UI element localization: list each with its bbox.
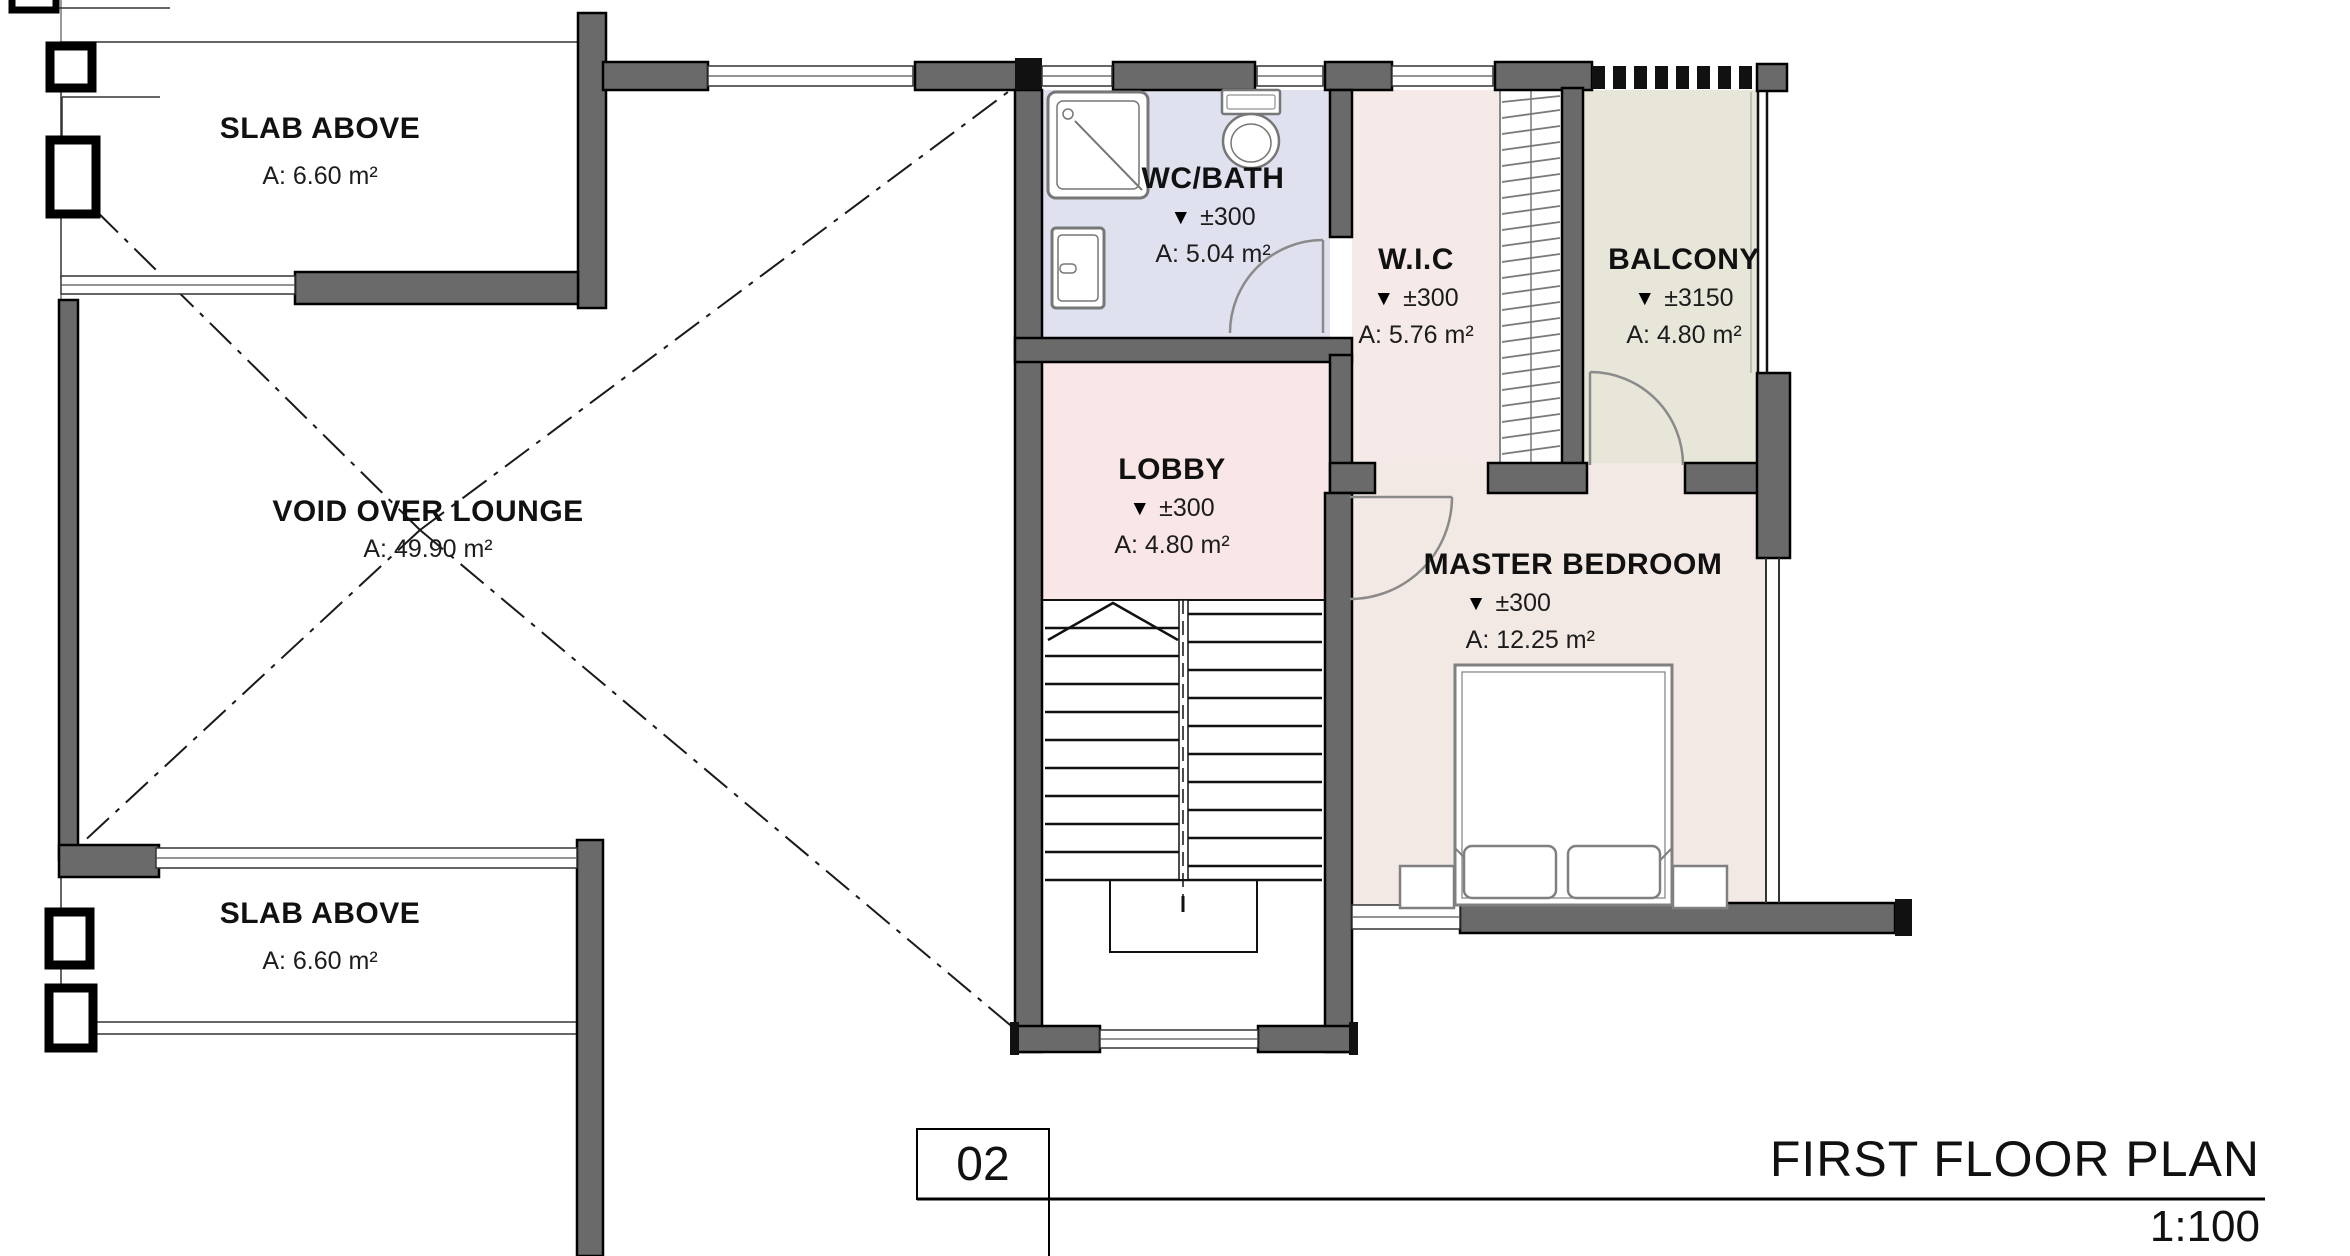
- room-name: WC/BATH: [1142, 162, 1285, 196]
- room-area: A: 5.04 m²: [1142, 240, 1285, 269]
- room-area: A: 4.80 m²: [1608, 321, 1760, 350]
- room-area: A: 12.25 m²: [1466, 626, 1723, 655]
- wardrobe-closet: [1500, 88, 1562, 465]
- level-marker-icon: ▼: [1634, 286, 1655, 311]
- room-name: W.I.C: [1358, 243, 1473, 277]
- sink: [1052, 228, 1104, 308]
- room-label-void-over-lounge: VOID OVER LOUNGE A: 49.90 m²: [272, 495, 583, 564]
- room-label-slab-above-bottom: SLAB ABOVE A: 6.60 m²: [220, 897, 421, 976]
- room-name: MASTER BEDROOM: [1424, 548, 1723, 582]
- drawing-number: 02: [917, 1129, 1049, 1199]
- floor-plan-page: SLAB ABOVE A: 6.60 m² VOID OVER LOUNGE A…: [0, 0, 2350, 1256]
- room-label-master-bedroom: MASTER BEDROOM ▼±300 A: 12.25 m²: [1424, 548, 1723, 655]
- room-name: SLAB ABOVE: [220, 112, 421, 146]
- pillow-left: [1464, 846, 1556, 898]
- drawing-title: FIRST FLOOR PLAN: [1770, 1130, 2260, 1188]
- drawing-scale: 1:100: [2150, 1202, 2260, 1252]
- room-level: ±300: [1159, 494, 1214, 523]
- nightstand-left: [1400, 866, 1454, 908]
- room-level: ±300: [1200, 203, 1255, 232]
- column-markers: [12, 0, 96, 1048]
- room-area: A: 49.90 m²: [272, 535, 583, 564]
- staircase: [1042, 600, 1325, 952]
- room-level: ±300: [1495, 589, 1550, 618]
- room-area: A: 6.60 m²: [220, 947, 421, 976]
- room-area: A: 6.60 m²: [220, 162, 421, 191]
- stair-opening-rail: [1110, 880, 1257, 952]
- toilet: [1222, 90, 1280, 168]
- room-name: SLAB ABOVE: [220, 897, 421, 931]
- room-label-slab-above-top: SLAB ABOVE A: 6.60 m²: [220, 112, 421, 191]
- level-marker-icon: ▼: [1373, 286, 1394, 311]
- shower: [1048, 92, 1148, 198]
- level-marker-icon: ▼: [1129, 496, 1150, 521]
- room-level: ±3150: [1664, 284, 1733, 313]
- room-area: A: 4.80 m²: [1114, 531, 1229, 560]
- room-label-balcony: BALCONY ▼±3150 A: 4.80 m²: [1608, 243, 1760, 350]
- room-label-wic: W.I.C ▼±300 A: 5.76 m²: [1358, 243, 1473, 350]
- room-label-wc-bath: WC/BATH ▼±300 A: 5.04 m²: [1142, 162, 1285, 269]
- room-name: BALCONY: [1608, 243, 1760, 277]
- room-level: ±300: [1403, 284, 1458, 313]
- level-marker-icon: ▼: [1170, 205, 1191, 230]
- stair-direction-arrow: [1048, 603, 1178, 640]
- nightstand-right: [1673, 866, 1727, 908]
- bedroom-window: [1766, 558, 1779, 903]
- room-name: LOBBY: [1114, 453, 1229, 487]
- room-area: A: 5.76 m²: [1358, 321, 1473, 350]
- pillow-right: [1568, 846, 1660, 898]
- level-marker-icon: ▼: [1466, 591, 1487, 616]
- room-name: VOID OVER LOUNGE: [272, 495, 583, 529]
- room-label-lobby: LOBBY ▼±300 A: 4.80 m²: [1114, 453, 1229, 560]
